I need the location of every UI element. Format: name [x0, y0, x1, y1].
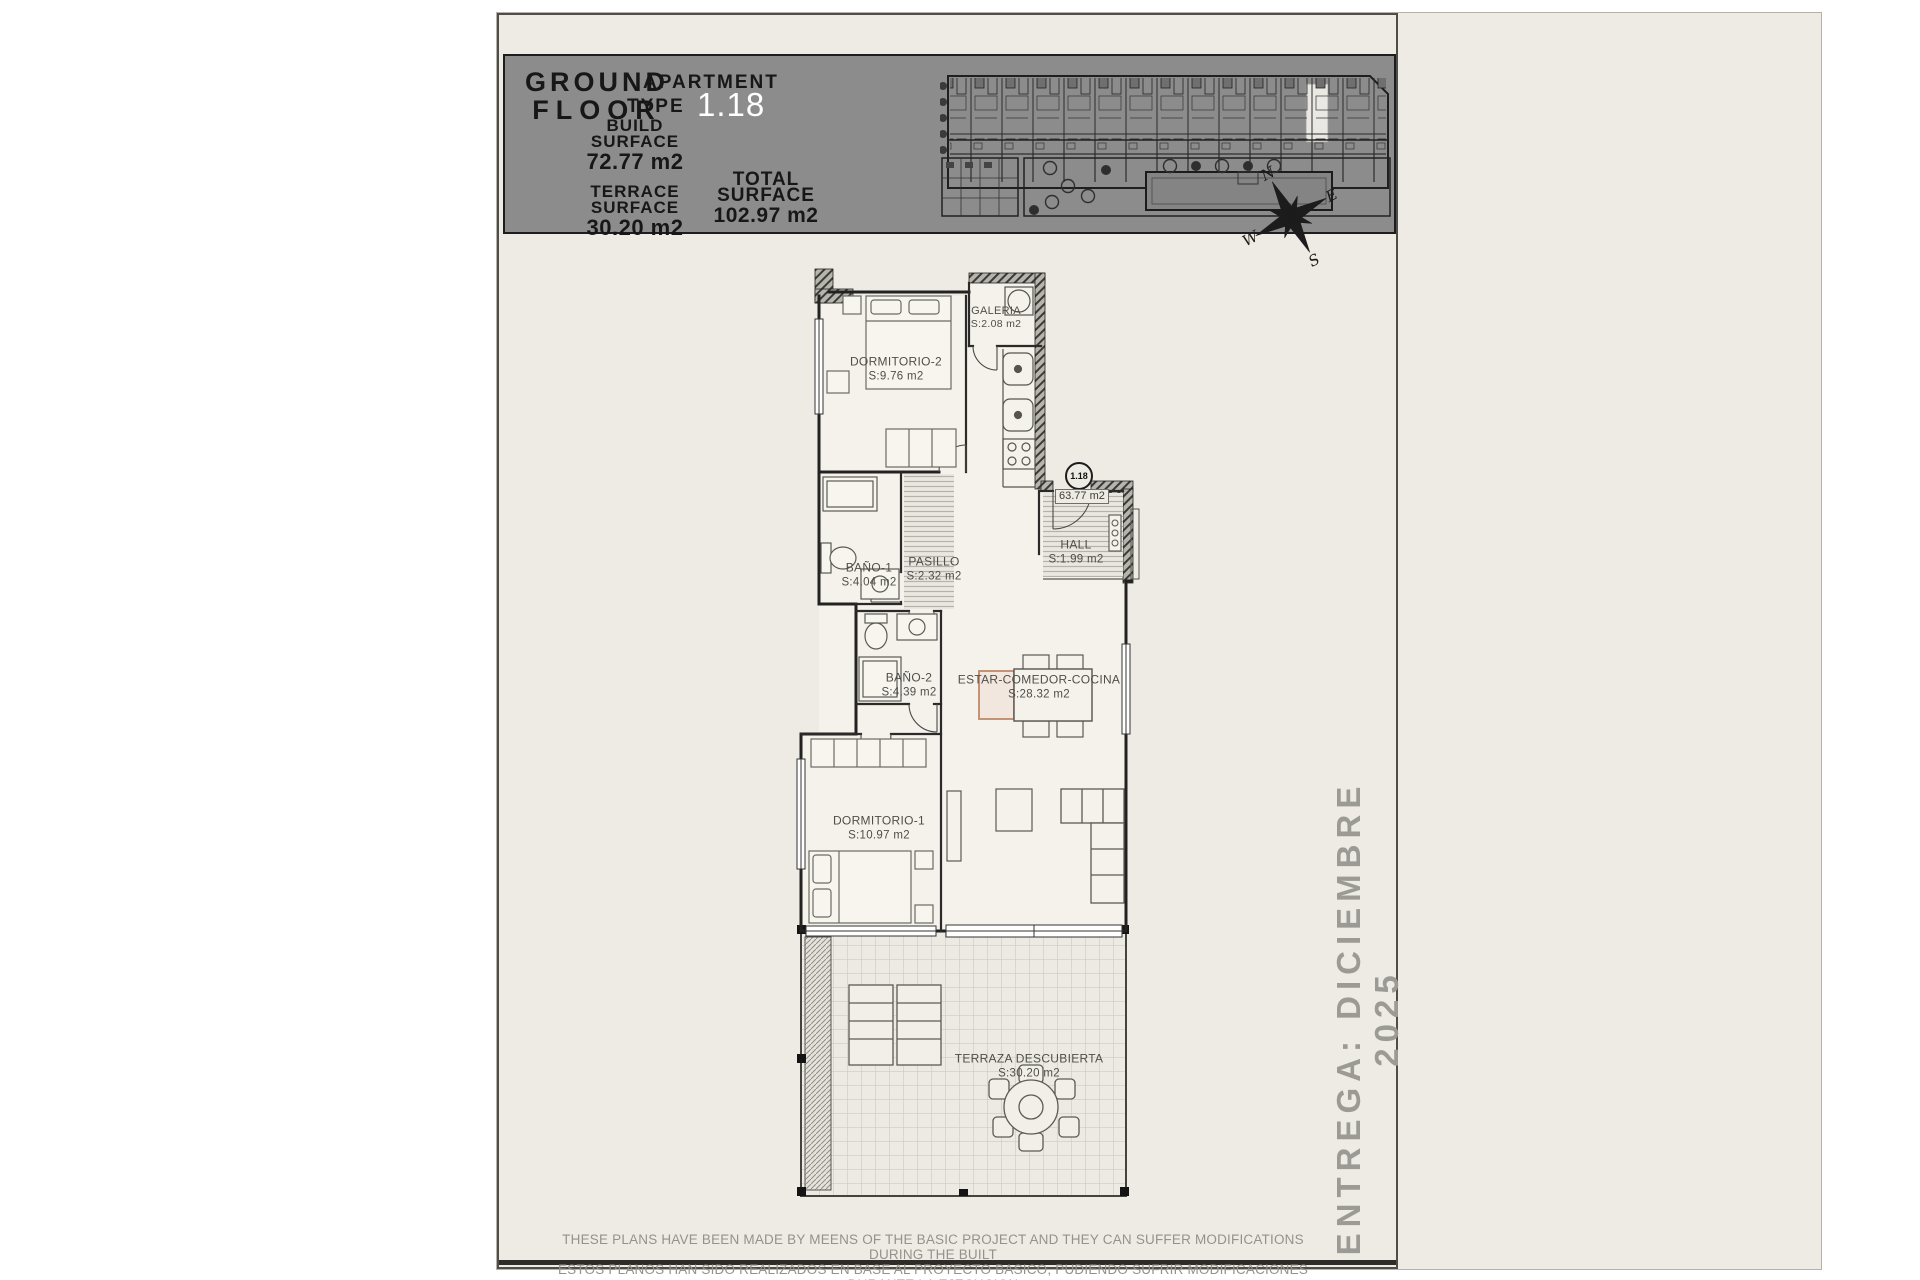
- coffee-table-icon: [996, 789, 1032, 831]
- disclaimer-line-es: ESTOS PLANOS HAN SIDO REALIZADOS EN BASE…: [533, 1262, 1333, 1280]
- room-name: DORMITORIO-2: [850, 355, 942, 370]
- room-label-estar-comedor-cocina: ESTAR-COMEDOR-COCINA S:28.32 m2: [958, 673, 1120, 702]
- room-name: PASILLO: [906, 555, 961, 570]
- room-area: S:10.97 m2: [833, 828, 925, 842]
- compass-west-label: W: [1241, 226, 1263, 250]
- room-label-pasillo: PASILLO S:2.32 m2: [906, 555, 961, 584]
- unit-number-badge: 1.18: [1065, 462, 1093, 490]
- disclaimer: THESE PLANS HAVE BEEN MADE BY MEENS OF T…: [533, 1232, 1333, 1280]
- floor-plan-sheet-page: GROUND FLOOR BUILD SURFACE 72.77 m2 TERR…: [0, 0, 1920, 1280]
- compass-east-label: E: [1322, 185, 1341, 207]
- room-label-terraza: TERRAZA DESCUBIERTA S:30.20 m2: [955, 1052, 1104, 1081]
- total-surface-label-2: SURFACE: [687, 188, 845, 204]
- hallway-hatch: [904, 474, 954, 609]
- room-name: DORMITORIO-1: [833, 814, 925, 829]
- room-area: S:30.20 m2: [955, 1066, 1104, 1080]
- compass-rose: N E S W: [1241, 161, 1341, 273]
- room-area: S:28.32 m2: [958, 687, 1120, 701]
- apartment-type-value: 1.18: [697, 86, 787, 124]
- room-label-galeria: GALERIA S:2.08 m2: [971, 305, 1022, 331]
- room-label-bano-1: BAÑO-1 S:4.04 m2: [841, 561, 896, 590]
- disclaimer-line-en: THESE PLANS HAVE BEEN MADE BY MEENS OF T…: [533, 1232, 1333, 1262]
- type-label: TYPE: [627, 96, 707, 118]
- room-name: BAÑO-2: [881, 671, 936, 686]
- room-name: HALL: [1048, 538, 1103, 553]
- toilet-icon: [865, 623, 887, 649]
- room-label-dormitorio-2: DORMITORIO-2 S:9.76 m2: [850, 355, 942, 384]
- site-trees-left: [940, 82, 947, 154]
- compass-north-label: N: [1257, 162, 1279, 185]
- build-surface-label-2: SURFACE: [553, 134, 717, 150]
- room-name: GALERIA: [971, 305, 1022, 318]
- drawing-sheet: GROUND FLOOR BUILD SURFACE 72.77 m2 TERR…: [496, 12, 1822, 1270]
- room-name: TERRAZA DESCUBIERTA: [955, 1052, 1104, 1067]
- room-name: ESTAR-COMEDOR-COCINA: [958, 673, 1120, 688]
- compass-south-label: S: [1305, 250, 1323, 271]
- room-area: S:2.08 m2: [971, 318, 1022, 331]
- room-name: BAÑO-1: [841, 561, 896, 576]
- compass-star: [1241, 163, 1341, 271]
- room-area: S:4.39 m2: [881, 685, 936, 699]
- planter-strip: [805, 937, 831, 1190]
- total-surface-value: 102.97 m2: [687, 204, 845, 228]
- total-surface: TOTAL SURFACE 102.97 m2: [687, 172, 845, 228]
- tv-unit-icon: [947, 791, 961, 861]
- delivery-date-note: ENTREGA: DICIEMBRE 2025: [1330, 758, 1372, 1278]
- room-area: S:9.76 m2: [850, 369, 942, 383]
- room-area: S:2.32 m2: [906, 569, 961, 583]
- room-label-bano-2: BAÑO-2 S:4.39 m2: [881, 671, 936, 700]
- room-label-hall: HALL S:1.99 m2: [1048, 538, 1103, 567]
- room-area: S:1.99 m2: [1048, 552, 1103, 566]
- building-row: [950, 78, 1386, 140]
- build-surface-value: 72.77 m2: [553, 150, 717, 174]
- room-label-dormitorio-1: DORMITORIO-1 S:10.97 m2: [833, 814, 925, 843]
- useful-surface-tag: 63.77 m2: [1055, 489, 1109, 504]
- room-area: S:4.04 m2: [841, 575, 896, 589]
